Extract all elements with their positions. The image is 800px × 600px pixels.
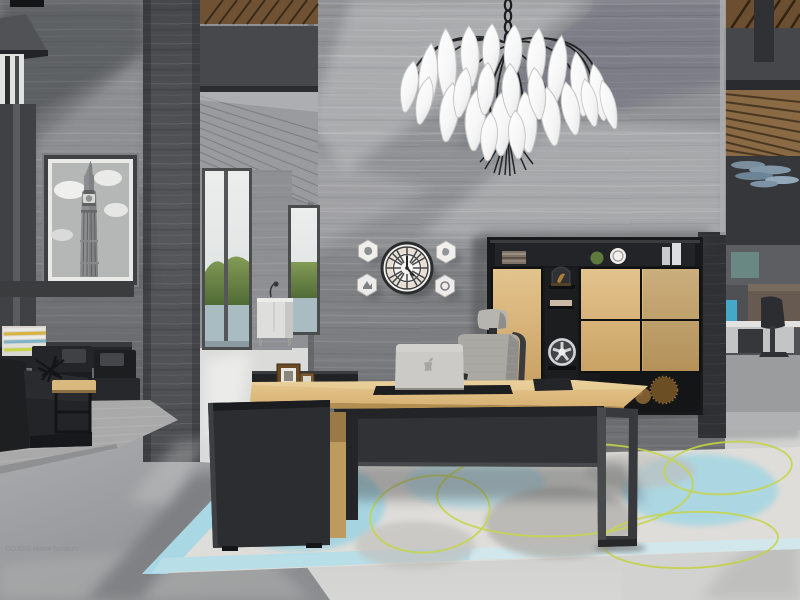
svg-text:GOJO'S Home furniture: GOJO'S Home furniture	[5, 546, 79, 553]
